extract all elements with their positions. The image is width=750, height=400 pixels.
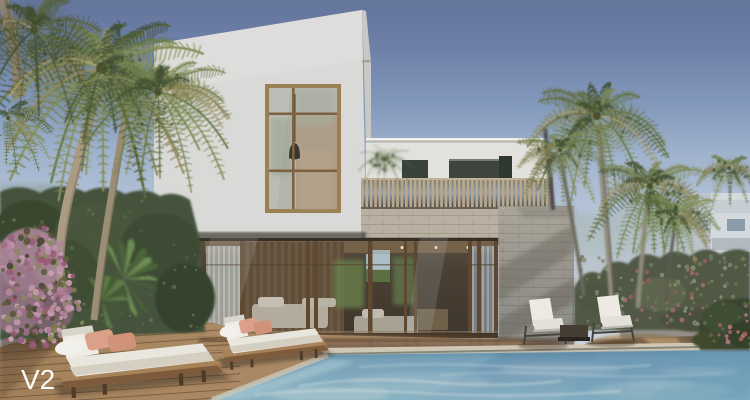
svg-text:V2: V2 xyxy=(21,364,55,395)
